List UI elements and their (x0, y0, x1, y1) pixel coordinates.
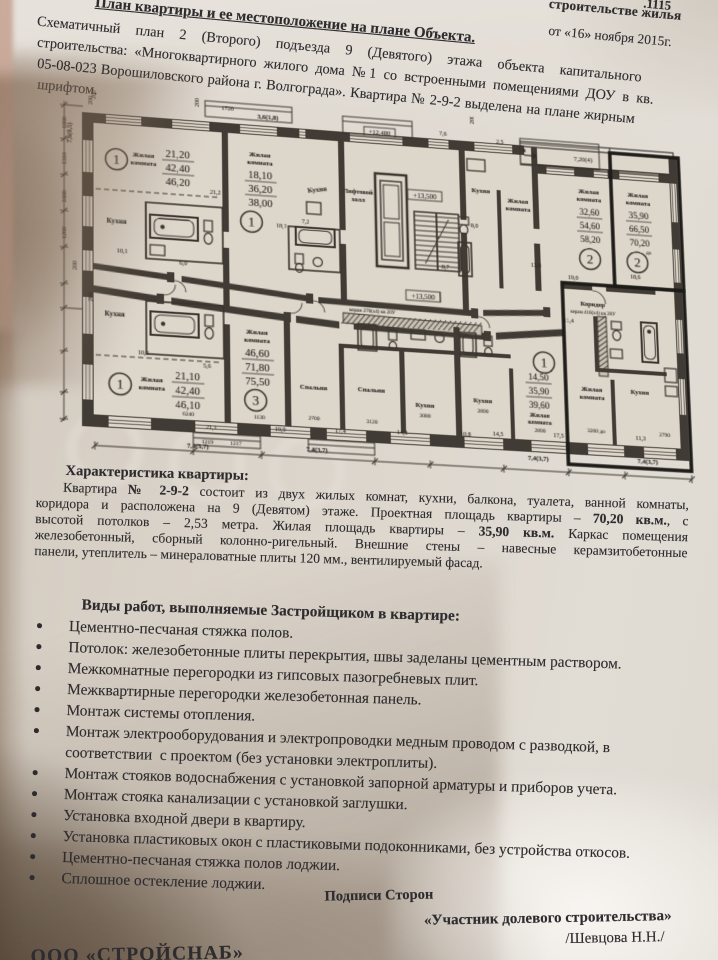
svg-text:7,20(4): 7,20(4) (574, 156, 593, 164)
svg-text:1217: 1217 (230, 441, 242, 448)
svg-text:35,90: 35,90 (628, 210, 649, 221)
svg-text:38,00: 38,00 (248, 197, 272, 210)
svg-text:54,60: 54,60 (580, 220, 601, 231)
svg-text:75,50: 75,50 (245, 375, 270, 389)
svg-text:21,1: 21,1 (206, 425, 217, 432)
svg-text:36,20: 36,20 (248, 183, 272, 196)
svg-text:+13,500: +13,500 (411, 292, 435, 301)
svg-text:7,4(3,7): 7,4(3,7) (306, 446, 327, 454)
svg-text:Кухня: Кухня (471, 187, 490, 195)
svg-text:Кухня: Кухня (630, 389, 649, 397)
svg-text:8,0: 8,0 (471, 223, 479, 229)
svg-text:35,90: 35,90 (529, 386, 550, 397)
svg-text:66,50: 66,50 (629, 224, 650, 235)
svg-text:2: 2 (634, 255, 641, 270)
svg-text:17,4: 17,4 (335, 428, 346, 435)
svg-text:в: в (522, 146, 526, 154)
svg-text:2,5: 2,5 (496, 140, 504, 146)
svg-text:до: до (646, 250, 652, 256)
svg-text:14,5: 14,5 (493, 432, 504, 439)
svg-text:2890: 2890 (535, 428, 546, 435)
svg-text:8,7: 8,7 (442, 265, 450, 271)
svg-text:Жилая: Жилая (246, 329, 268, 337)
svg-text:18,10: 18,10 (248, 169, 272, 182)
svg-text:1130: 1130 (254, 415, 266, 422)
svg-text:42,40: 42,40 (175, 384, 200, 398)
svg-text:14,3: 14,3 (397, 430, 408, 437)
svg-text:комната: комната (528, 419, 553, 427)
svg-text:7,2: 7,2 (302, 219, 310, 225)
svg-text:2: 2 (587, 252, 594, 267)
svg-text:39,60: 39,60 (529, 400, 550, 411)
svg-text:46,60: 46,60 (245, 347, 270, 360)
svg-text:6240: 6240 (183, 411, 195, 418)
svg-text:71,80: 71,80 (245, 361, 270, 375)
svg-text:Кухня: Кухня (415, 402, 435, 410)
svg-text:19,9: 19,9 (275, 427, 286, 434)
svg-text:3200 до: 3200 до (587, 428, 605, 435)
svg-text:7,4(3,7): 7,4(3,7) (637, 458, 658, 466)
svg-text:7,4(3,7): 7,4(3,7) (528, 455, 549, 463)
svg-text:18,6: 18,6 (630, 275, 641, 281)
svg-text:10,8: 10,8 (460, 432, 471, 439)
svg-text:18,1: 18,1 (276, 223, 287, 230)
svg-text:46,10: 46,10 (175, 399, 200, 413)
svg-text:2890: 2890 (477, 409, 489, 416)
svg-text:3: 3 (252, 393, 259, 408)
svg-text:70,20: 70,20 (630, 238, 651, 249)
svg-text:Кухня: Кухня (473, 397, 492, 405)
svg-text:17,5: 17,5 (553, 433, 564, 440)
svg-text:14,50: 14,50 (528, 372, 549, 383)
svg-text:13,8: 13,8 (531, 263, 542, 270)
svg-text:холл: холл (352, 196, 366, 204)
svg-text:3120: 3120 (366, 419, 378, 426)
svg-text:3080: 3080 (419, 413, 431, 420)
svg-text:1: 1 (540, 355, 547, 370)
svg-text:32,60: 32,60 (579, 207, 600, 218)
svg-text:200: 200 (470, 115, 476, 124)
svg-text:1: 1 (248, 214, 255, 229)
svg-text:11,3: 11,3 (635, 436, 645, 443)
svg-text:19,0: 19,0 (568, 275, 579, 282)
svg-text:7,4(3,7): 7,4(3,7) (187, 443, 209, 451)
svg-text:2790: 2790 (659, 432, 670, 439)
svg-text:58,20: 58,20 (580, 234, 601, 245)
svg-text:Жилая: Жилая (581, 386, 602, 394)
svg-text:2700: 2700 (308, 416, 320, 423)
svg-text:7,6: 7,6 (439, 131, 447, 137)
